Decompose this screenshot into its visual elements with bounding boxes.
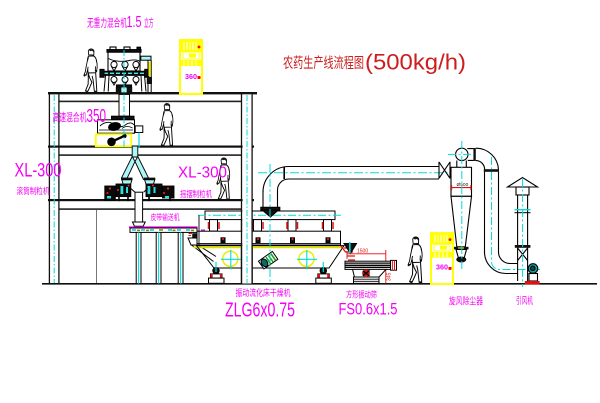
svg-text:农药生产线流程图: 农药生产线流程图 bbox=[283, 55, 364, 72]
svg-text:皮带输送机: 皮带输送机 bbox=[151, 212, 180, 222]
svg-text:无重力混合机: 无重力混合机 bbox=[87, 16, 127, 30]
svg-text:引风机: 引风机 bbox=[516, 295, 533, 307]
svg-text:XL-300: XL-300 bbox=[178, 165, 227, 182]
svg-text:345: 345 bbox=[387, 272, 393, 281]
svg-text:滚筒制粒机: 滚筒制粒机 bbox=[17, 186, 50, 196]
svg-text:摇摆制粒机: 摇摆制粒机 bbox=[180, 189, 212, 199]
svg-text:1.5: 1.5 bbox=[127, 14, 142, 31]
svg-text:振动流化床干燥机: 振动流化床干燥机 bbox=[236, 287, 291, 298]
svg-text:旋风除尘器: 旋风除尘器 bbox=[449, 296, 483, 308]
svg-text:ZLG6x0.75: ZLG6x0.75 bbox=[225, 300, 295, 322]
svg-text:立方: 立方 bbox=[144, 16, 154, 30]
svg-text:FS0.6x1.5: FS0.6x1.5 bbox=[339, 300, 398, 319]
svg-text:1500: 1500 bbox=[357, 249, 368, 255]
svg-text:XL-300: XL-300 bbox=[15, 161, 62, 182]
svg-text:高速混合机: 高速混合机 bbox=[53, 110, 87, 124]
svg-text:方形振动筛: 方形振动筛 bbox=[346, 290, 377, 300]
svg-text:(500kg/h): (500kg/h) bbox=[365, 50, 466, 75]
svg-text:350: 350 bbox=[87, 106, 107, 126]
